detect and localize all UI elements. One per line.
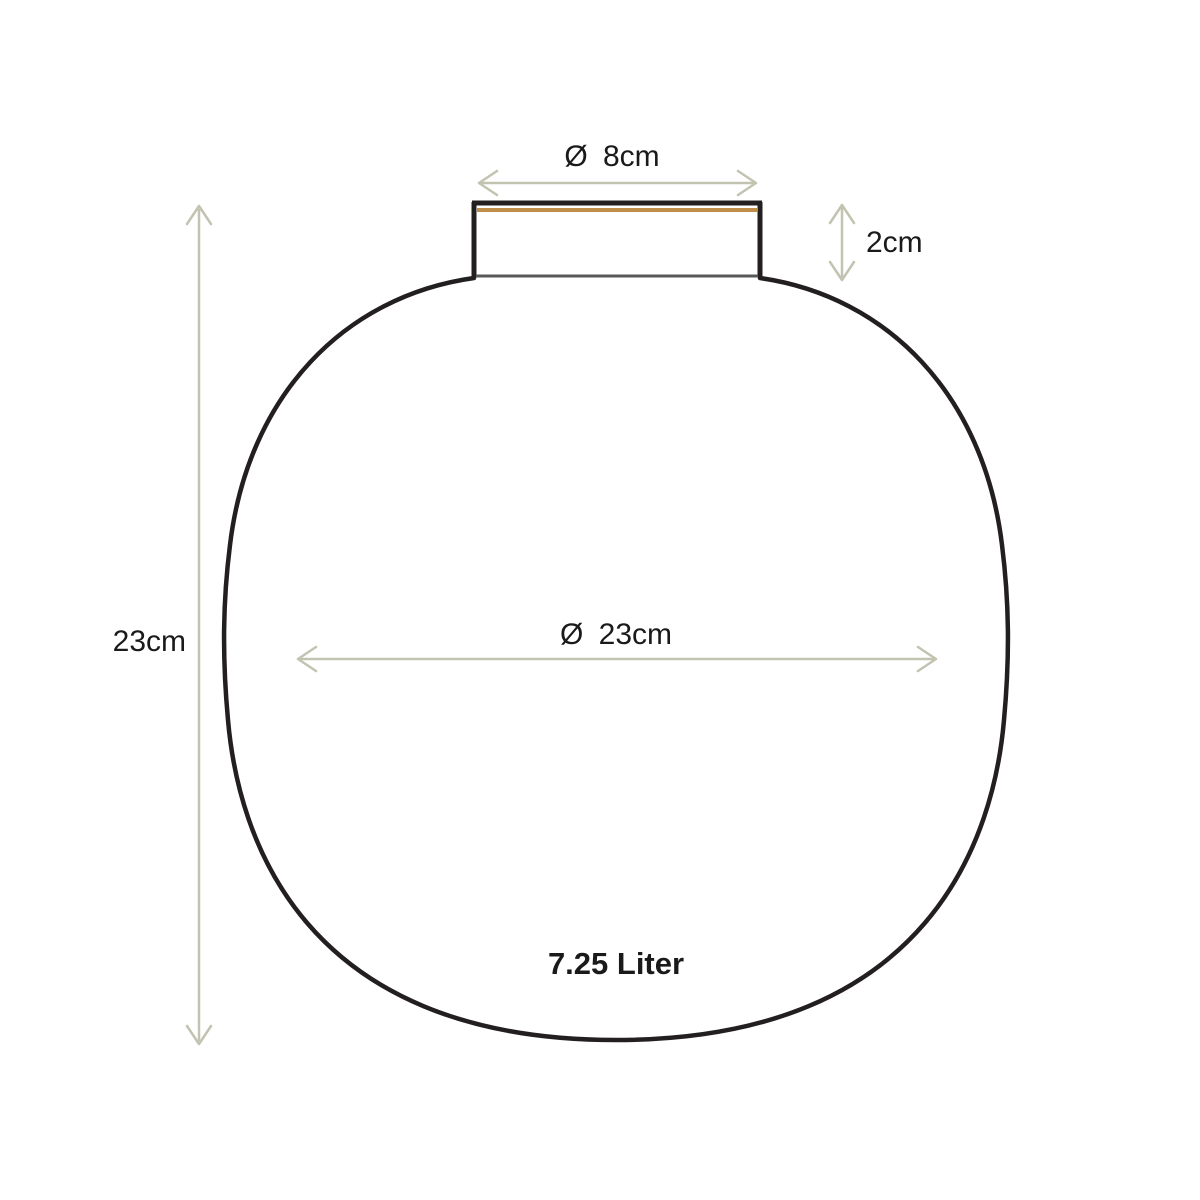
dimension-body-diameter: Ø 23cm: [298, 618, 936, 671]
vase-dimension-diagram: Ø 8cm 2cm 23cm Ø 23cm 7.25 Liter: [0, 0, 1200, 1200]
capacity-label: 7.25 Liter: [548, 946, 684, 981]
dimension-neck-height: 2cm: [830, 205, 923, 280]
diagram-svg: Ø 8cm 2cm 23cm Ø 23cm 7.25 Liter: [0, 0, 1200, 1200]
dimension-neck-diameter: Ø 8cm: [479, 140, 756, 195]
vase-neck: [472, 202, 762, 277]
neck-diameter-label: Ø 8cm: [564, 140, 659, 173]
dimension-body-height: 23cm: [113, 206, 211, 1044]
body-height-label: 23cm: [113, 625, 186, 658]
neck-height-label: 2cm: [866, 226, 923, 259]
body-diameter-label: Ø 23cm: [560, 618, 672, 651]
